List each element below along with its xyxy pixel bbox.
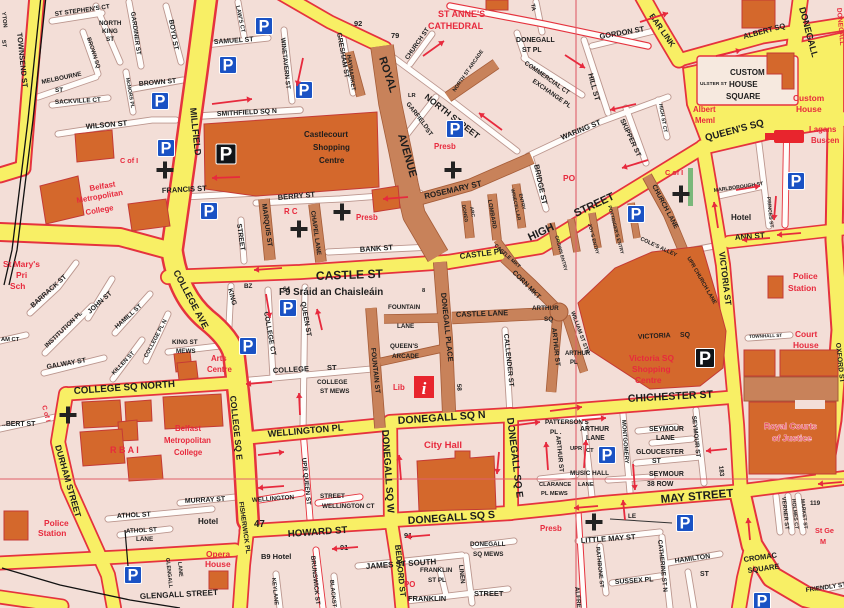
svg-text:WELLINGTON CT: WELLINGTON CT [322, 503, 375, 510]
svg-text:ARCADE: ARCADE [392, 353, 419, 360]
svg-text:Meml: Meml [695, 116, 715, 125]
svg-text:P: P [128, 567, 139, 585]
svg-text:P: P [161, 140, 172, 158]
svg-text:ST ANNE'S: ST ANNE'S [438, 9, 485, 19]
svg-text:Centre: Centre [635, 375, 662, 385]
svg-text:P: P [283, 300, 294, 318]
svg-text:183: 183 [717, 465, 725, 477]
svg-text:58: 58 [455, 384, 463, 392]
svg-text:C of I: C of I [120, 156, 138, 165]
svg-text:ST PL: ST PL [428, 577, 446, 584]
svg-text:Hotel: Hotel [198, 517, 218, 526]
svg-text:Presb: Presb [540, 524, 562, 533]
svg-text:DONEGALL: DONEGALL [470, 541, 506, 548]
svg-text:SEYMOUR: SEYMOUR [649, 471, 684, 478]
svg-text:47: 47 [254, 519, 265, 530]
svg-text:of Justice: of Justice [772, 433, 812, 443]
svg-text:C of I: C of I [665, 168, 683, 177]
svg-text:P: P [602, 447, 613, 465]
svg-text:Centre: Centre [319, 156, 345, 165]
svg-text:R B A I: R B A I [110, 445, 139, 455]
svg-text:ST MEWS: ST MEWS [320, 388, 349, 395]
svg-text:GLOUCESTER: GLOUCESTER [636, 449, 684, 456]
svg-text:P: P [299, 82, 310, 100]
svg-text:Police: Police [44, 518, 69, 528]
svg-text:CT: CT [586, 448, 594, 454]
svg-text:St Mary's: St Mary's [3, 259, 40, 269]
svg-text:Lib: Lib [393, 383, 405, 392]
svg-text:CLARANCE: CLARANCE [539, 482, 571, 488]
svg-text:ST: ST [327, 363, 337, 372]
svg-text:TA: TA [529, 3, 536, 11]
svg-text:Arts: Arts [211, 354, 227, 363]
svg-text:LR: LR [408, 93, 417, 99]
svg-text:MUSIC HALL: MUSIC HALL [570, 470, 609, 477]
svg-text:ST: ST [106, 36, 114, 43]
svg-text:LANE: LANE [578, 482, 594, 488]
svg-text:P: P [757, 593, 768, 608]
svg-text:Court: Court [795, 329, 818, 339]
svg-text:DONEGALL: DONEGALL [516, 37, 555, 44]
svg-text:Centre: Centre [207, 365, 232, 374]
svg-text:i: i [422, 379, 427, 398]
svg-text:FRANKLIN: FRANKLIN [420, 567, 453, 574]
svg-text:SQ MEWS: SQ MEWS [473, 551, 504, 558]
svg-text:Castlecourt: Castlecourt [304, 130, 348, 139]
svg-text:M: M [820, 537, 826, 546]
svg-text:FOUNTAIN: FOUNTAIN [388, 304, 421, 311]
svg-text:Shopping: Shopping [632, 364, 671, 374]
svg-text:SEYMOUR: SEYMOUR [649, 426, 684, 433]
svg-text:ST: ST [652, 458, 662, 465]
svg-text:Presb: Presb [356, 213, 378, 222]
svg-text:CASTLE LANE: CASTLE LANE [456, 308, 509, 319]
svg-text:LANE: LANE [656, 435, 675, 442]
svg-text:ARTHUR: ARTHUR [580, 426, 609, 433]
svg-text:Buscen: Buscen [811, 136, 839, 145]
svg-text:QUEEN'S: QUEEN'S [390, 343, 418, 350]
svg-text:House: House [793, 340, 819, 350]
svg-text:FRANKLIN: FRANKLIN [408, 594, 446, 603]
svg-text:Opera: Opera [206, 549, 231, 559]
svg-text:64: 64 [283, 286, 291, 293]
svg-text:ST: ST [0, 40, 7, 48]
svg-text:Station: Station [38, 528, 66, 538]
svg-text:Presb: Presb [434, 142, 456, 151]
svg-text:AM CT: AM CT [1, 337, 20, 343]
svg-text:Royal Courts: Royal Courts [764, 421, 817, 431]
svg-text:P: P [450, 121, 461, 139]
svg-text:ST PL: ST PL [522, 47, 542, 54]
svg-text:St Ge: St Ge [815, 526, 834, 535]
svg-text:PO: PO [404, 580, 415, 589]
svg-text:NORTH: NORTH [99, 20, 122, 27]
svg-text:P: P [791, 173, 802, 191]
svg-text:119: 119 [810, 500, 821, 507]
svg-text:LE: LE [628, 513, 636, 520]
svg-text:STREET: STREET [474, 589, 504, 598]
svg-text:ARTHUR: ARTHUR [532, 305, 559, 312]
svg-text:92: 92 [354, 19, 362, 28]
svg-text:R C: R C [284, 207, 298, 216]
svg-text:CUSTOM: CUSTOM [730, 68, 765, 77]
svg-text:Shopping: Shopping [313, 143, 350, 152]
svg-text:HOUSE: HOUSE [729, 80, 758, 89]
svg-text:B9 Hotel: B9 Hotel [261, 552, 291, 561]
svg-text:LANE: LANE [136, 536, 153, 543]
svg-text:P: P [204, 203, 215, 221]
svg-text:UPR: UPR [570, 446, 583, 452]
svg-text:Pri: Pri [16, 270, 27, 280]
svg-text:KING: KING [102, 28, 118, 35]
svg-text:SQ: SQ [544, 316, 553, 323]
svg-text:P: P [259, 18, 270, 36]
svg-text:PL: PL [570, 360, 578, 366]
svg-text:P: P [680, 515, 691, 533]
svg-text:PL MEWS: PL MEWS [541, 491, 568, 497]
svg-text:Station: Station [788, 283, 816, 293]
svg-text:P: P [699, 348, 711, 368]
svg-text:Lagans: Lagans [809, 125, 837, 134]
svg-text:P: P [243, 338, 254, 356]
svg-text:College: College [174, 448, 203, 457]
svg-text:COLLEGE: COLLEGE [317, 379, 348, 386]
svg-text:MEWS: MEWS [176, 348, 196, 355]
svg-text:P: P [223, 57, 234, 75]
svg-text:Belfast: Belfast [175, 424, 201, 433]
svg-text:P: P [631, 206, 642, 224]
svg-text:ST: ST [55, 87, 63, 94]
svg-text:38 ROW: 38 ROW [647, 481, 674, 488]
svg-text:Police: Police [793, 271, 818, 281]
svg-text:BZ: BZ [244, 283, 253, 290]
svg-text:Victoria SQ: Victoria SQ [629, 353, 674, 363]
svg-text:P: P [155, 93, 166, 111]
svg-text:LANE: LANE [586, 435, 605, 442]
svg-text:PO: PO [563, 173, 576, 183]
svg-text:ULSTER ST: ULSTER ST [700, 81, 727, 87]
svg-text:Metropolitan: Metropolitan [164, 436, 211, 445]
svg-text:PL .: PL . [550, 429, 562, 436]
svg-text:Albert: Albert [693, 105, 716, 114]
svg-text:79: 79 [391, 31, 399, 40]
svg-text:Sch: Sch [10, 281, 25, 291]
svg-text:ST: ST [700, 571, 710, 578]
svg-text:House: House [796, 104, 822, 114]
svg-text:House: House [205, 559, 231, 569]
svg-text:Hotel: Hotel [731, 213, 751, 222]
svg-text:COLLEGE: COLLEGE [273, 364, 310, 375]
svg-text:ARTHUR: ARTHUR [565, 351, 591, 357]
svg-text:City Hall: City Hall [424, 440, 462, 451]
svg-text:F9 Sráid an Chaisleáin: F9 Sráid an Chaisleáin [279, 287, 383, 298]
svg-text:Custom: Custom [793, 93, 824, 103]
svg-text:..BERT ST: ..BERT ST [2, 421, 36, 428]
svg-text:P: P [220, 145, 233, 166]
svg-text:SQUARE: SQUARE [726, 92, 761, 101]
svg-text:KING ST: KING ST [172, 339, 198, 346]
svg-text:CASTLE ST: CASTLE ST [316, 267, 384, 283]
svg-text:LANE: LANE [397, 323, 414, 330]
svg-text:STREET: STREET [320, 493, 345, 500]
svg-text:CATHEDRAL: CATHEDRAL [428, 21, 484, 31]
svg-text:SQ: SQ [680, 332, 691, 339]
